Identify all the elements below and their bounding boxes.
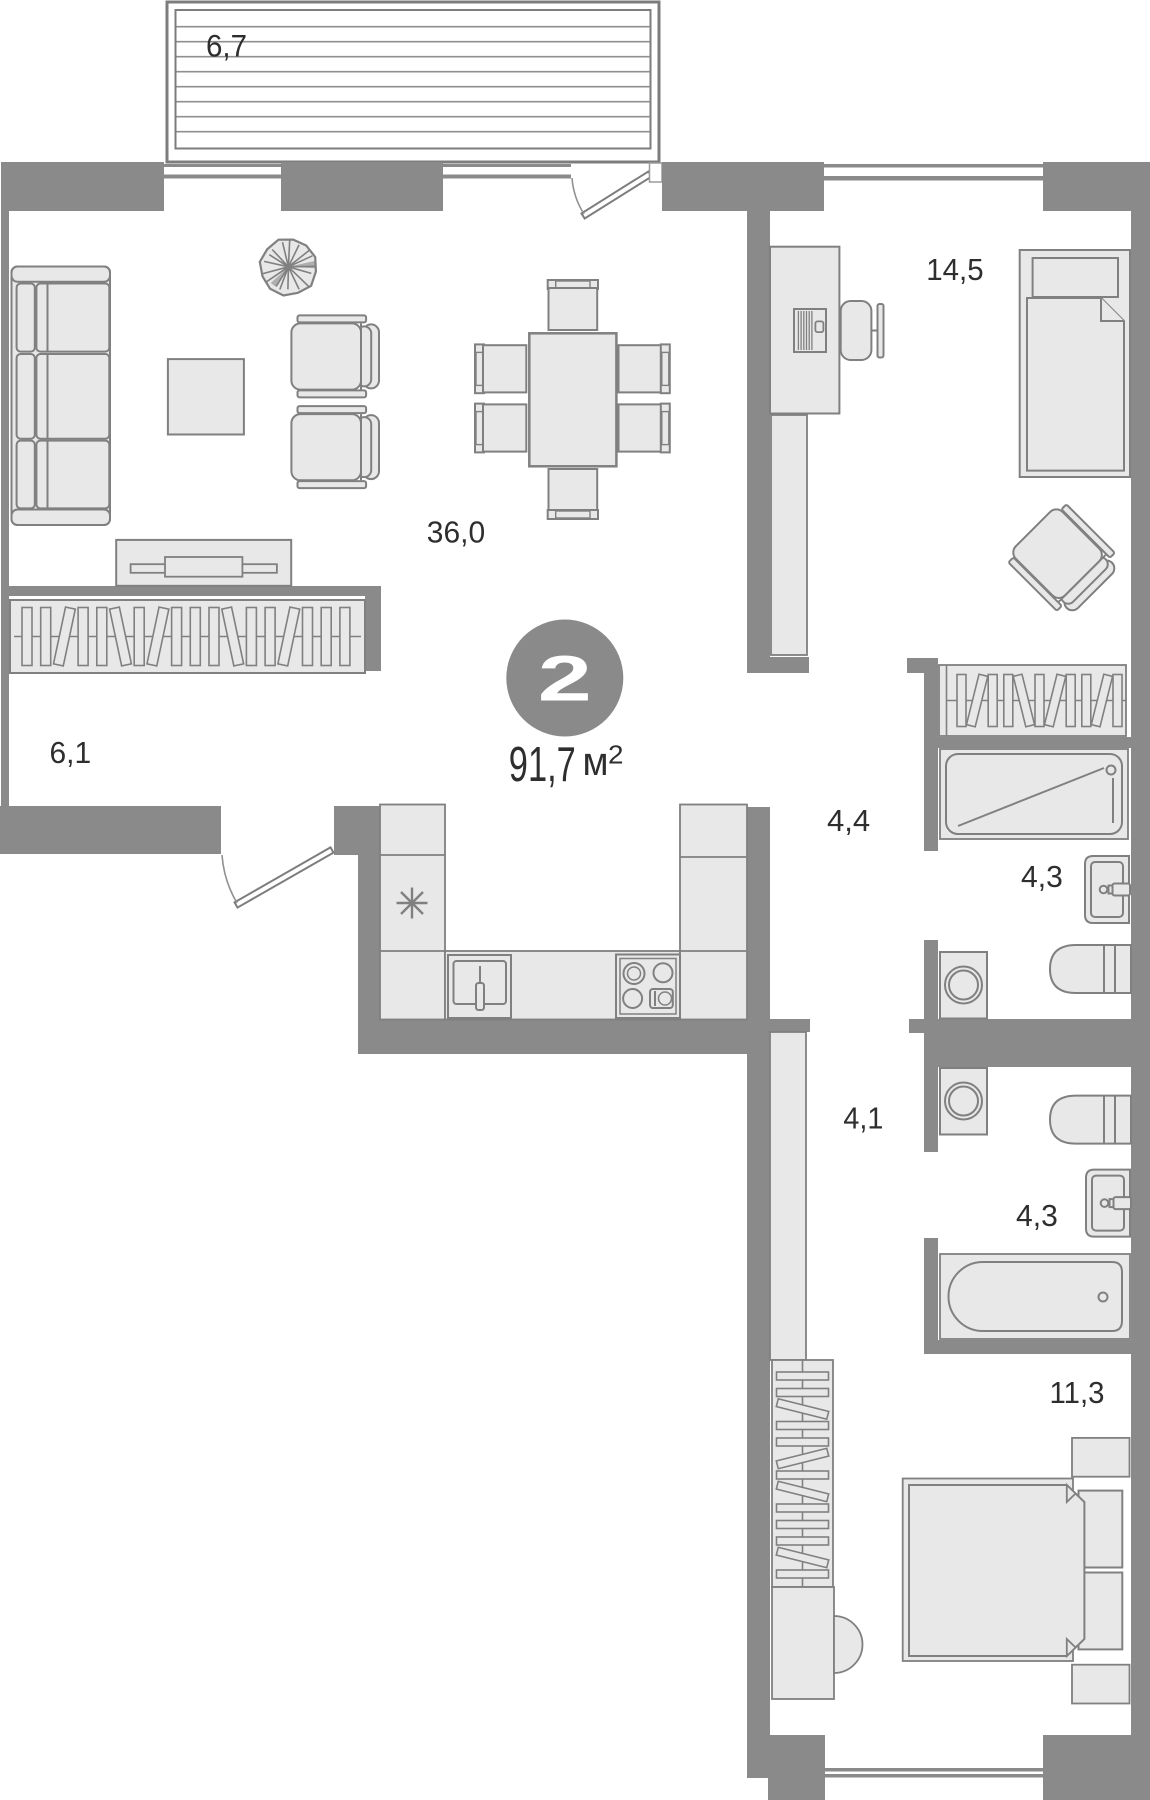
svg-text:36,0: 36,0 <box>427 514 485 549</box>
svg-text:14,5: 14,5 <box>926 252 983 287</box>
svg-text:4,3: 4,3 <box>1021 859 1063 894</box>
svg-text:2: 2 <box>538 643 592 715</box>
svg-text:4,1: 4,1 <box>843 1101 883 1136</box>
svg-text:11,3: 11,3 <box>1050 1375 1105 1410</box>
svg-text:6,7: 6,7 <box>206 28 247 64</box>
svg-text:4,3: 4,3 <box>1016 1198 1058 1233</box>
svg-text:4,4: 4,4 <box>827 803 870 838</box>
svg-text:м: м <box>583 740 609 784</box>
svg-text:91,7: 91,7 <box>509 738 576 792</box>
svg-text:2: 2 <box>608 742 624 770</box>
svg-text:6,1: 6,1 <box>50 735 92 770</box>
